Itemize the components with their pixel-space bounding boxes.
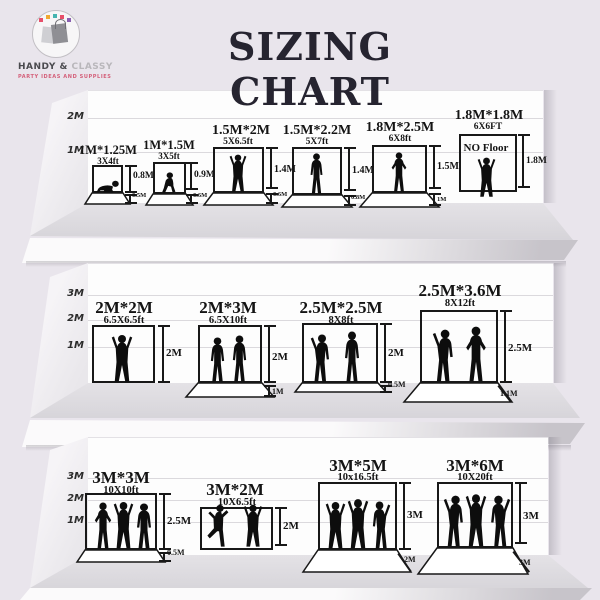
floor-dimension: 1M xyxy=(272,387,284,396)
shelf-floor xyxy=(30,555,588,592)
backdrop-floor xyxy=(202,192,275,207)
backdrop-size-label: 2M*2M xyxy=(84,298,164,318)
silhouette-person-arms-up xyxy=(229,153,247,193)
shelf-floor xyxy=(30,383,580,420)
silhouette-person-arms-raised xyxy=(113,500,134,550)
silhouette-person-partying xyxy=(443,494,466,548)
backdrop-size-label: 1.8M*1.8M xyxy=(452,108,526,124)
height-dimension: 2M xyxy=(283,520,299,532)
shelf-front-edge xyxy=(22,238,578,263)
wall-edge-shadow xyxy=(554,263,567,383)
panel-row-3: 3M 2M 1M xyxy=(0,0,600,600)
backdrop-floor xyxy=(293,382,388,394)
backdrop-feet-label: 3X4ft xyxy=(78,156,138,166)
scale-label: 3M xyxy=(46,288,84,299)
height-dimension: 1.5M xyxy=(437,161,459,172)
backdrop-floor xyxy=(280,194,354,209)
floor-dimension: 0.5M xyxy=(167,548,185,557)
backdrop-feet-label: 10X10ft xyxy=(89,485,153,496)
backdrop-floor xyxy=(144,193,195,207)
backdrop-2m-2m: 2M*2M 6.5X6.5ft 2M xyxy=(0,0,600,600)
silhouette-person-hands-on-hips xyxy=(93,502,113,550)
backdrop-size-label: 1.5M*2M xyxy=(208,123,274,139)
backdrop-frame xyxy=(459,134,517,192)
backdrop-size-label: 1M*1.25M xyxy=(78,143,138,158)
floor-dimension: 0.6M xyxy=(273,191,287,198)
silhouette-toddler xyxy=(161,172,177,194)
silhouette-person-standing xyxy=(230,335,249,383)
backdrop-frame xyxy=(318,482,397,550)
backdrop-floor xyxy=(358,192,441,209)
silhouette-person-partying xyxy=(465,492,487,548)
backdrop-size-label: 1.5M*2.2M xyxy=(281,123,353,139)
backdrop-size-label: 2M*3M xyxy=(188,298,268,318)
height-dimension: 0.9M xyxy=(194,170,215,180)
floor-dimension: 2M xyxy=(404,555,416,564)
left-wall xyxy=(30,263,88,418)
backdrop-1-5m-2-2m: 1.5M*2.2M 5X7ft 1.4M 0.8M xyxy=(0,0,600,600)
backdrop-feet-label: 8X12ft xyxy=(430,298,490,309)
backdrop-2-5m-3-6m: 2.5M*3.6M 8X12ft 2.5M 1.1M xyxy=(0,0,600,600)
scale-label: 1M xyxy=(46,340,84,351)
silhouette-person-hands-on-hips xyxy=(390,152,408,193)
silhouette-person-waving xyxy=(370,500,391,550)
backdrop-size-label: 3M*5M xyxy=(318,456,398,476)
backdrop-3m-3m: 3M*3M 10X10ft 2.5M 0.5M xyxy=(0,0,600,600)
backdrop-1m-1-25m: 1M*1.25M 3X4ft 0.8M 0.5M xyxy=(0,0,600,600)
height-dimension: 3M xyxy=(523,510,539,522)
backdrop-frame xyxy=(302,323,378,383)
panel-row-2: 3M 2M 1M xyxy=(0,0,600,600)
backdrop-floor xyxy=(83,192,132,206)
shelf-shadow xyxy=(26,445,571,451)
no-floor-note: NO Floor xyxy=(461,142,511,154)
back-wall xyxy=(88,437,548,556)
backdrop-frame xyxy=(292,147,342,195)
backdrop-floor xyxy=(416,547,530,576)
floor-dimension: 1.1M xyxy=(500,389,518,398)
backdrop-feet-label: 10X20ft xyxy=(441,472,509,483)
floor-dimension: 3M xyxy=(519,558,531,567)
backdrop-1m-1-5m: 1M*1.5M 3X5ft 0.9M 0.6M xyxy=(0,0,600,600)
backdrop-1-8m-1-8m-no-floor: 1.8M*1.8M 6X6FT NO Floor 1.8M xyxy=(0,0,600,600)
backdrop-floor xyxy=(75,549,167,564)
shelf-front-edge xyxy=(20,588,592,600)
bunting-icon xyxy=(39,18,43,22)
scale-label: 1M xyxy=(46,515,84,526)
silhouette-person-standing xyxy=(134,503,154,550)
back-wall xyxy=(88,90,543,204)
height-dimension: 2.5M xyxy=(508,342,532,354)
scale-label: 2M xyxy=(46,313,84,324)
silhouette-person-dancing xyxy=(325,500,346,550)
floor-dimension: 0.8M xyxy=(351,194,365,201)
brand-name: HANDY & CLASSY xyxy=(18,62,104,72)
silhouette-person-pointing-up xyxy=(432,328,456,383)
left-wall xyxy=(30,437,88,588)
floor-dimension: 0.5M xyxy=(132,192,146,199)
backdrop-frame xyxy=(92,325,155,383)
backdrop-feet-label: 5X7ft xyxy=(287,137,347,147)
backdrop-1-8m-2-5m: 1.8M*2.5M 6X8ft 1.5M 1M xyxy=(0,0,600,600)
backdrop-feet-label: 6.5X10ft xyxy=(194,315,262,326)
backdrop-size-label: 3M*6M xyxy=(435,456,515,476)
backdrop-size-label: 3M*2M xyxy=(195,480,275,500)
backdrop-feet-label: 6X6FT xyxy=(458,122,518,132)
backdrop-size-label: 1M*1.5M xyxy=(140,138,198,153)
backdrop-feet-label: 8X8ft xyxy=(312,315,370,326)
backdrop-size-label: 1.8M*2.5M xyxy=(363,120,437,136)
silhouette-person-standing xyxy=(308,153,325,195)
header: HANDY & CLASSY PARTY IDEAS AND SUPPLIES … xyxy=(0,0,600,600)
backdrop-2m-3m: 2M*3M 6.5X10ft 2M 1M xyxy=(0,0,600,600)
height-dimension: 2M xyxy=(166,347,182,359)
backdrop-3m-6m: 3M*6M 10X20ft 3M 3M xyxy=(0,0,600,600)
backdrop-size-label: 2.5M*3.6M xyxy=(414,281,506,301)
backdrop-frame xyxy=(92,165,123,193)
silhouette-person-arms-raised xyxy=(111,333,133,383)
brand-logo: HANDY & CLASSY PARTY IDEAS AND SUPPLIES xyxy=(18,6,104,84)
backdrop-1-5m-2m: 1.5M*2M 5X6.5ft 1.4M 0.6M xyxy=(0,0,600,600)
backdrop-size-label: 2.5M*2.5M xyxy=(295,298,387,318)
backdrop-frame xyxy=(153,162,186,194)
backdrop-frame xyxy=(200,507,273,550)
height-dimension: 1.8M xyxy=(526,156,547,166)
shelf-floor xyxy=(30,203,573,240)
sizing-chart-poster: HANDY & CLASSY PARTY IDEAS AND SUPPLIES … xyxy=(0,0,600,600)
height-dimension: 1.4M xyxy=(274,164,296,175)
backdrop-frame xyxy=(372,145,427,193)
height-dimension: 1.4M xyxy=(352,165,374,176)
page-title: SIZING CHART xyxy=(150,24,470,114)
backdrop-floor xyxy=(402,382,514,404)
floor-dimension: 1M xyxy=(437,196,446,203)
scale-label: 3M xyxy=(46,471,84,482)
height-dimension: 0.8M xyxy=(133,171,154,181)
shelf-front-edge xyxy=(22,420,585,447)
silhouette-person-arms-raised xyxy=(477,156,496,198)
backdrop-floor xyxy=(301,549,413,574)
panel-row-1: 2M 1M xyxy=(0,0,600,600)
backdrop-3m-5m: 3M*5M 10x16.5ft 3M 2M xyxy=(0,0,600,600)
gift-bag-icon xyxy=(32,10,80,58)
silhouette-person-arms-raised xyxy=(243,503,263,548)
backdrop-frame xyxy=(213,147,264,193)
silhouette-person-dancing xyxy=(347,497,369,550)
backdrop-floor xyxy=(184,382,276,399)
scale-label: 1M xyxy=(46,145,84,156)
left-wall xyxy=(30,90,88,236)
height-dimension: 3M xyxy=(407,509,423,521)
backdrop-feet-label: 6.5X6.5ft xyxy=(88,315,160,326)
scale-label: 2M xyxy=(46,493,84,504)
height-dimension: 2M xyxy=(388,347,404,359)
silhouette-person-standing xyxy=(342,331,362,383)
height-dimension: 2.5M xyxy=(167,515,191,527)
silhouette-person-waving xyxy=(310,333,332,383)
backdrop-feet-label: 5X6.5ft xyxy=(208,137,268,147)
brand-tagline: PARTY IDEAS AND SUPPLIES xyxy=(18,74,104,80)
backdrop-frame xyxy=(198,325,262,383)
height-dimension: 2M xyxy=(272,351,288,363)
silhouette-person-hands-on-hips xyxy=(464,326,488,383)
backdrop-feet-label: 6X8ft xyxy=(370,134,430,144)
back-wall xyxy=(88,263,553,384)
silhouette-person-standing xyxy=(208,337,227,383)
floor-dimension: 0.6M xyxy=(193,192,207,199)
brand-name-secondary: CLASSY xyxy=(72,62,113,72)
shelf-shadow xyxy=(26,261,566,267)
backdrop-frame xyxy=(85,493,157,550)
backdrop-feet-label: 10X6.5ft xyxy=(203,497,271,508)
backdrop-feet-label: 3X5ft xyxy=(140,151,198,161)
wall-edge-shadow xyxy=(549,437,562,555)
backdrop-frame xyxy=(437,482,513,548)
silhouette-person-partying xyxy=(488,494,511,548)
brand-name-primary: HANDY & xyxy=(18,62,68,72)
backdrop-size-label: 3M*3M xyxy=(81,468,161,488)
silhouette-person-dancing-kick xyxy=(206,504,234,548)
backdrop-feet-label: 10x16.5ft xyxy=(324,472,392,483)
backdrop-2-5m-2-5m: 2.5M*2.5M 8X8ft 2M 0.5M xyxy=(0,0,600,600)
wall-edge-shadow xyxy=(544,90,557,203)
silhouette-baby-crawling xyxy=(95,180,120,193)
backdrop-3m-2m: 3M*2M 10X6.5ft 2M xyxy=(0,0,600,600)
scale-label: 2M xyxy=(46,111,84,122)
backdrop-frame xyxy=(420,310,498,383)
floor-dimension: 0.5M xyxy=(388,380,406,389)
